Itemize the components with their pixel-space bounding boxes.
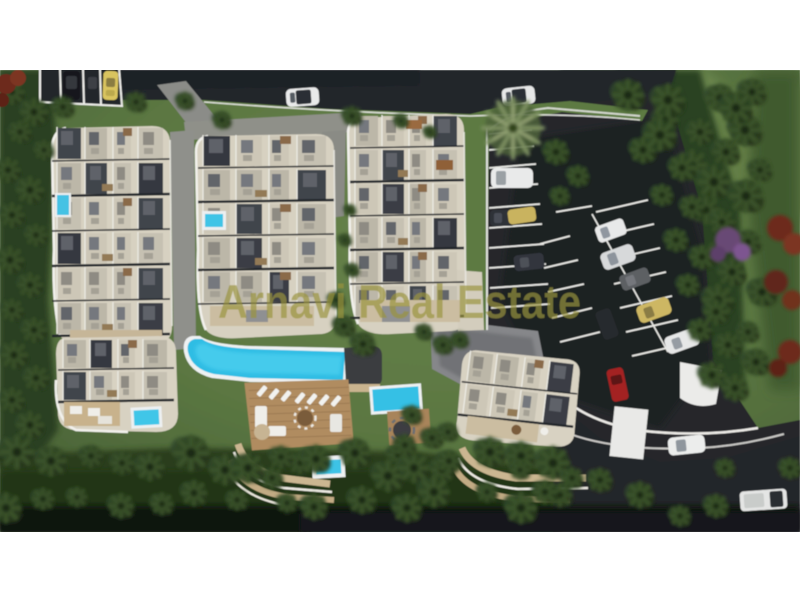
svg-text:Arnavi Real Estate: Arnavi Real Estate bbox=[218, 277, 581, 329]
